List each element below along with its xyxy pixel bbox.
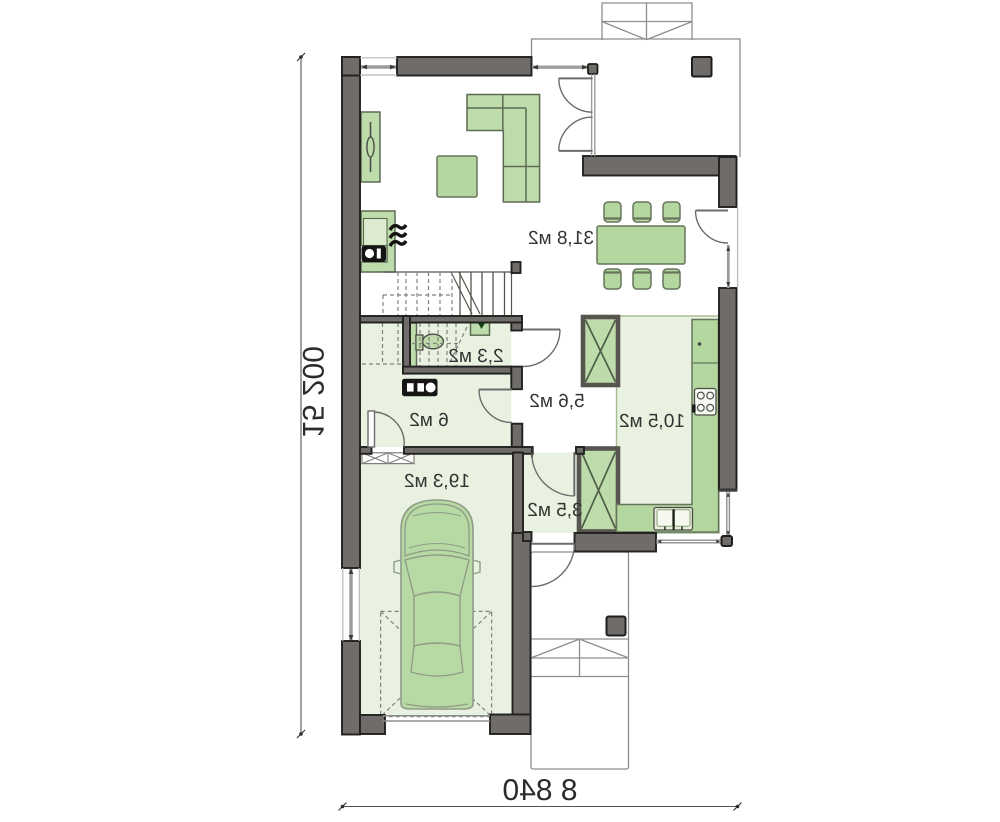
svg-text:6 м2: 6 м2 — [409, 410, 448, 431]
svg-text:8 840: 8 840 — [502, 774, 577, 807]
svg-text:3,5 м2: 3,5 м2 — [527, 500, 582, 521]
svg-text:19,3 м2: 19,3 м2 — [404, 471, 470, 492]
svg-text:5,6 м2: 5,6 м2 — [529, 391, 584, 412]
svg-text:31,8 м2: 31,8 м2 — [528, 228, 594, 249]
svg-text:10,5 м2: 10,5 м2 — [619, 411, 685, 432]
svg-text:15 200: 15 200 — [296, 346, 329, 438]
svg-text:2,3 м2: 2,3 м2 — [448, 346, 503, 367]
